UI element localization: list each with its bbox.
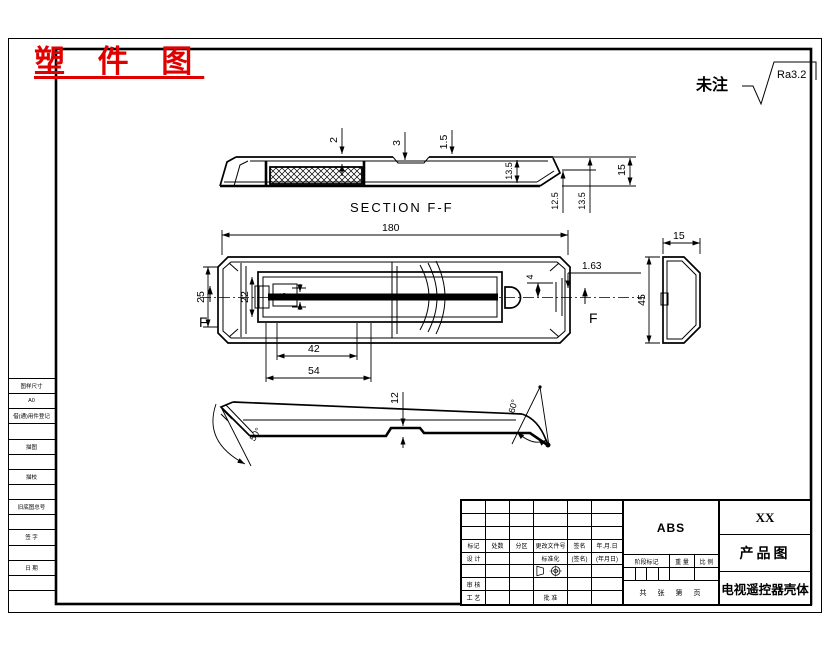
- title-block: 标记 处数 分区 更改文件号 签名 年.月.日 设 计 标准化 (签名) (年月…: [460, 499, 812, 606]
- margin-registration-strip: 图样尺寸 A0 借(通)用件登记 描图 描校 旧底图总号 签 字 日 期: [8, 378, 55, 605]
- strip-row: [8, 455, 55, 470]
- weight-label: 重 量: [670, 555, 695, 568]
- sheet-count: 共 张 第 页: [624, 581, 718, 604]
- drawing-type: 产品图: [720, 535, 810, 572]
- material-value: ABS: [624, 501, 718, 555]
- strip-row: [8, 576, 55, 591]
- rev-header: 签名: [568, 540, 592, 553]
- roughness-value: Ra3.2: [777, 69, 806, 81]
- audit-label: 审 核: [462, 578, 486, 591]
- strip-row: [8, 485, 55, 500]
- dim-lip-1-5: 1.5: [438, 135, 450, 150]
- bottom-view: 12 50° 60°: [213, 385, 551, 466]
- dim-inner-13-5: 13.5: [504, 162, 514, 180]
- strip-row: 描校: [8, 470, 55, 485]
- dim-step-12: 12: [389, 392, 401, 404]
- part-name: 电视遥控器壳体: [720, 572, 810, 604]
- side-view: 15 45: [636, 230, 700, 343]
- strip-row: 日 期: [8, 561, 55, 576]
- dim-length-180: 180: [382, 222, 400, 234]
- plastic-part-stamp: 塑 件 图: [34, 36, 204, 81]
- dim-offset-4: 4: [525, 274, 535, 279]
- drawing-sheet: 塑 件 图 未注 Ra3.2: [0, 0, 830, 654]
- strip-row: [8, 424, 55, 439]
- dim-cover-54: 54: [308, 365, 320, 377]
- rev-header: 更改文件号: [534, 540, 568, 553]
- section-caption: SECTION F-F: [350, 200, 454, 215]
- projection-symbol-cell: [534, 565, 568, 578]
- rev-header: 标记: [462, 540, 486, 553]
- strip-row: 图样尺寸: [8, 379, 55, 394]
- company-name: XX: [720, 501, 810, 535]
- title-block-right: XX 产品图 电视遥控器壳体: [718, 501, 810, 604]
- standardization-label: 标准化: [534, 553, 568, 566]
- design-label: 设 计: [462, 553, 486, 566]
- dim-tail-12-5: 12.5: [550, 192, 560, 210]
- section-view: 2 3 1.5 13.5 12.5 13.5 15 SECTION F-F: [220, 128, 636, 215]
- angle-50: 50°: [248, 426, 264, 443]
- strip-row: 签 字: [8, 530, 55, 545]
- strip-row: [8, 546, 55, 561]
- strip-row: 描图: [8, 440, 55, 455]
- strip-row: 旧底图总号: [8, 500, 55, 515]
- dim-height-45: 45: [636, 294, 648, 306]
- section-letter-right: F: [589, 310, 598, 326]
- rev-header: 处数: [486, 540, 510, 553]
- strip-row: 借(通)用件登记: [8, 409, 55, 424]
- strip-row: [8, 591, 55, 605]
- plan-view: F F 180 25 22 5 42 54 4: [195, 222, 645, 382]
- date-label: (年月日): [592, 553, 622, 566]
- dim-end-15: 15: [616, 164, 628, 176]
- stage-mark-label: 阶段标记: [624, 555, 670, 568]
- battery-cover-hatch: [270, 167, 362, 184]
- process-label: 工 艺: [462, 591, 486, 604]
- dim-wall-2: 2: [328, 137, 340, 143]
- dim-inner-22: 22: [239, 291, 251, 303]
- revision-table: 标记 处数 分区 更改文件号 签名 年.月.日 设 计 标准化 (签名) (年月…: [462, 501, 622, 604]
- dim-opening-25: 25: [195, 291, 207, 303]
- rev-header: 年.月.日: [592, 540, 622, 553]
- section-letter-left: F: [199, 314, 208, 330]
- roughness-note: 未注 Ra3.2: [695, 62, 816, 104]
- battery-latch-slot: [268, 294, 498, 301]
- roughness-label: 未注: [695, 75, 728, 94]
- signature-label: (签名): [568, 553, 592, 566]
- title-block-middle: ABS 阶段标记 重 量 比 例 共 张 第 页: [622, 501, 718, 604]
- scale-label: 比 例: [695, 555, 718, 568]
- strip-row: [8, 515, 55, 530]
- dim-gap-1-63: 1.63: [582, 261, 602, 272]
- dim-slot-5: 5: [278, 292, 288, 297]
- strip-row: A0: [8, 394, 55, 409]
- approve-label: 批 准: [534, 591, 568, 604]
- angle-60: 60°: [507, 398, 520, 414]
- dim-rib-3: 3: [391, 140, 403, 146]
- dim-cover-42: 42: [308, 343, 320, 355]
- rev-header: 分区: [510, 540, 534, 553]
- dim-depth-15: 15: [673, 230, 685, 242]
- projection-symbol-icon: [535, 565, 567, 577]
- dim-tail-13-5: 13.5: [577, 192, 587, 210]
